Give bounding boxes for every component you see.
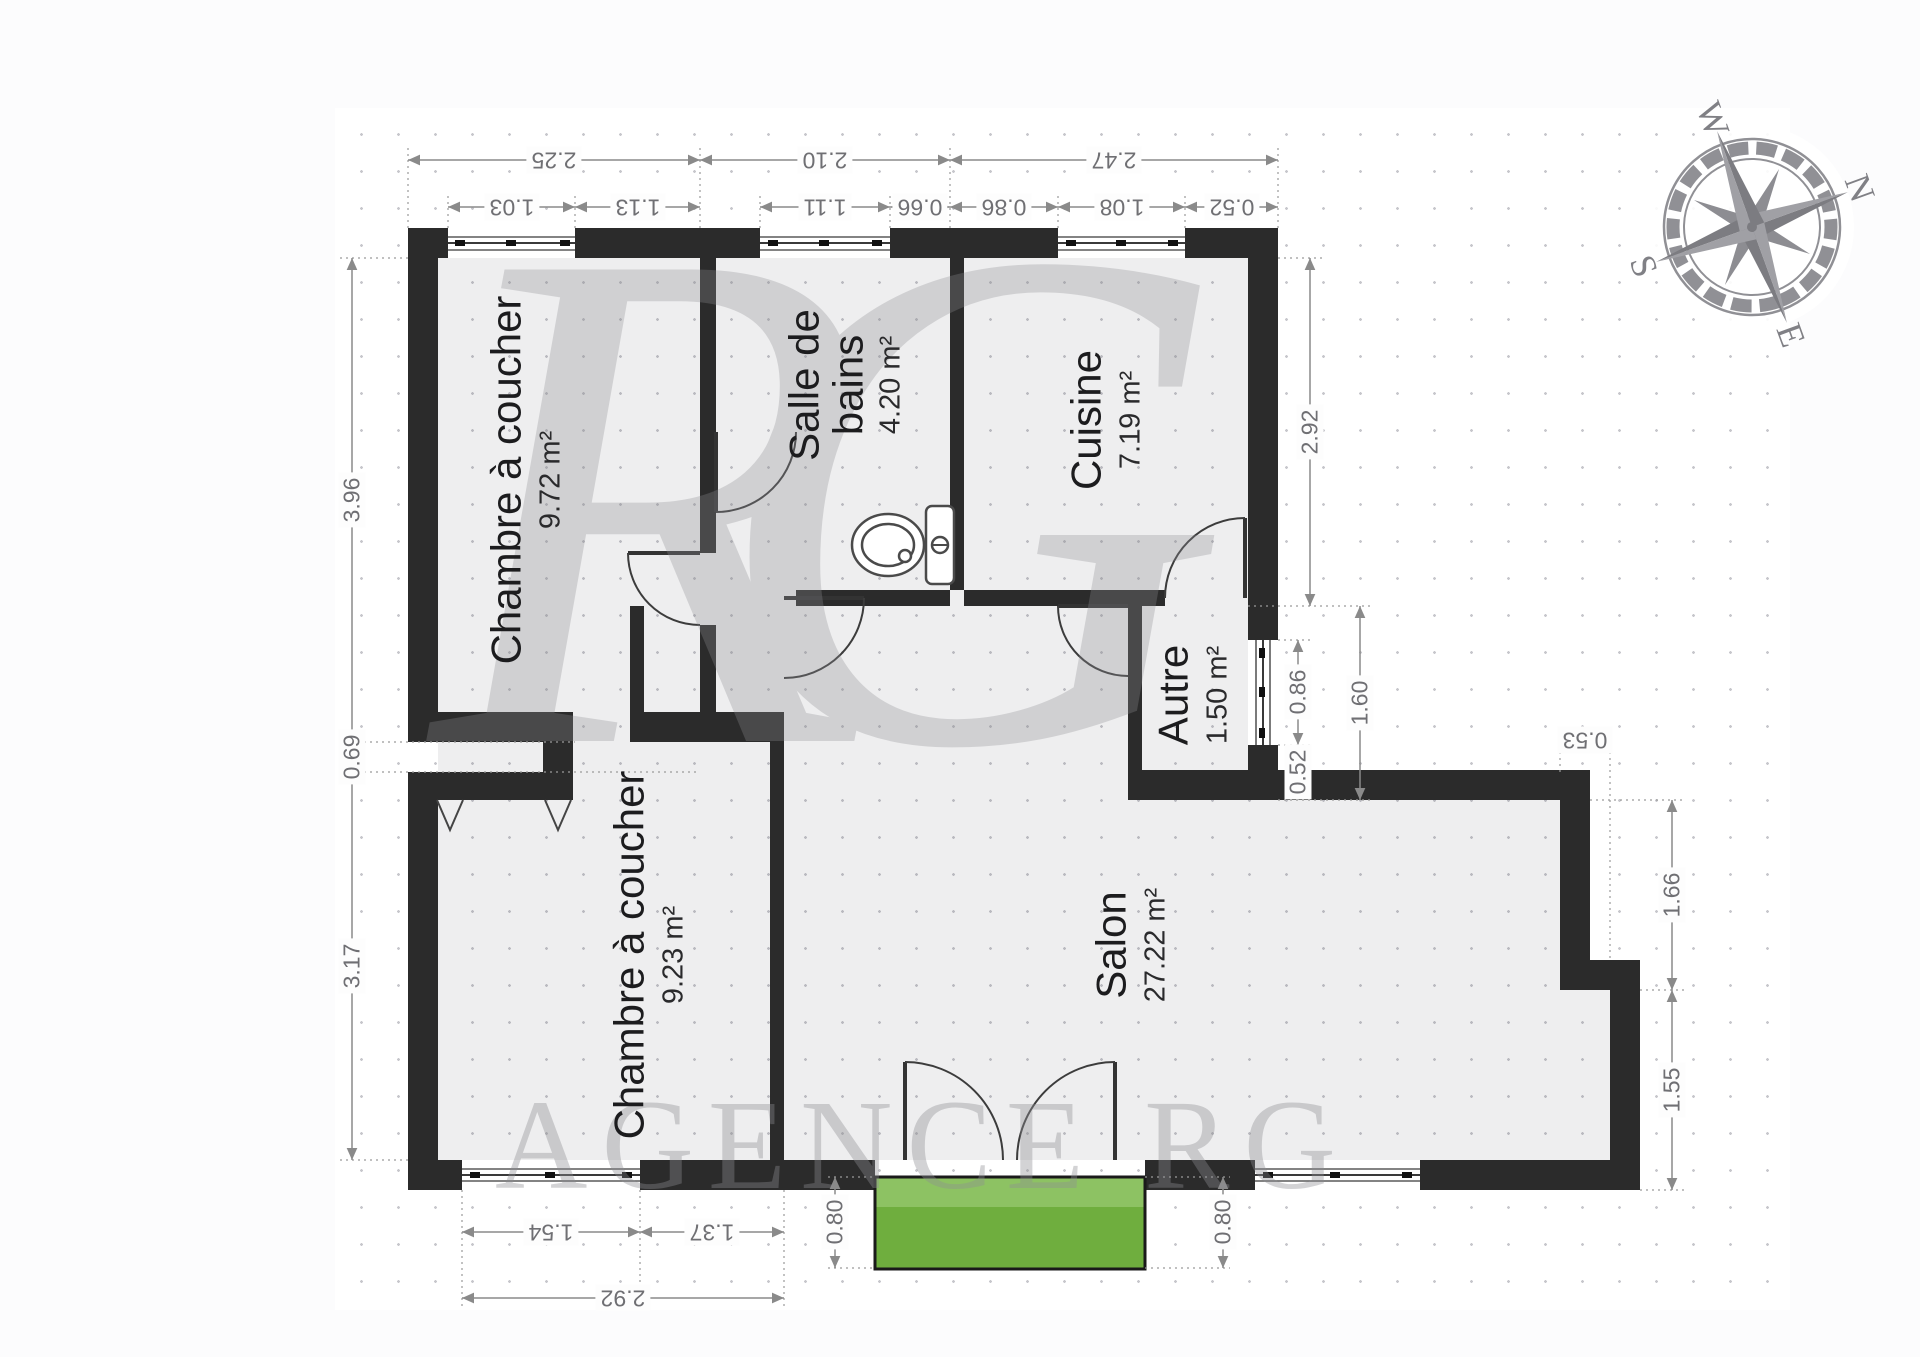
floor-plan-page: RG AGENCE RG Chambre à coucher 9.72 m² S… <box>0 0 1920 1357</box>
floor-plan-canvas <box>0 0 1920 1357</box>
compass-rose-icon <box>1621 96 1882 357</box>
apartment-floor <box>438 258 1610 1160</box>
entrance-step <box>875 1177 1145 1269</box>
